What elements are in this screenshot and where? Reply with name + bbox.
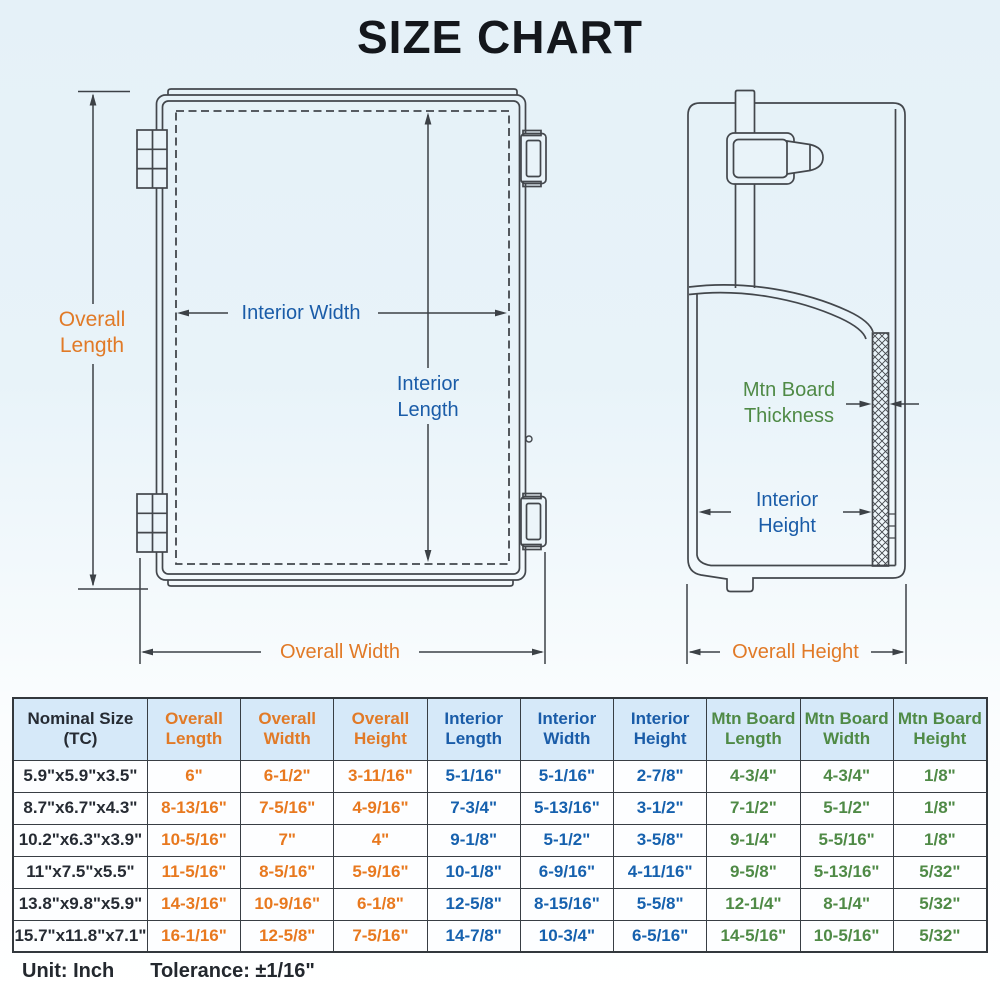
overall-width-label: Overall Width [262,640,418,664]
enclosure-inner-wall [163,101,520,574]
table-cell: 8-1/4" [800,888,893,920]
door-edge-bar-fill [736,97,755,288]
table-header-nominal-size: Nominal Size (TC) [13,698,147,760]
overall-height-label: Overall Height [718,640,873,664]
table-cell: 5-13/16" [520,792,613,824]
table-cell: 8-13/16" [147,792,240,824]
door-edge-bar-cap [736,91,755,99]
table-cell: 9-1/4" [707,824,800,856]
table-cell: 5-1/16" [427,760,520,792]
table-cell: 4" [334,824,427,856]
table-header-mtn-board-height: Mtn Board Height [893,698,987,760]
interior-length-label: Interior Length [382,371,474,423]
table-cell: 5-1/16" [520,760,613,792]
table-cell: 10-3/4" [520,920,613,952]
size-table-container: Nominal Size (TC) Overall Length Overall… [12,697,988,953]
table-row: 8.7"x6.7"x4.3"8-13/16"7-5/16"4-9/16"7-3/… [13,792,987,824]
size-table-body: 5.9"x5.9"x3.5"6"6-1/2"3-11/16"5-1/16"5-1… [13,760,987,952]
interior-length-dimension [425,113,432,563]
table-row: 11"x7.5"x5.5"11-5/16"8-5/16"5-9/16"10-1/… [13,856,987,888]
screw-detail [526,436,532,442]
table-cell: 5-5/16" [800,824,893,856]
table-cell: 14-7/8" [427,920,520,952]
table-cell: 5-5/8" [614,888,707,920]
table-cell: 10-5/16" [800,920,893,952]
table-header-mtn-board-length: Mtn Board Length [707,698,800,760]
table-cell: 1/8" [893,760,987,792]
latch-clamp-side [727,133,823,184]
table-cell: 4-9/16" [334,792,427,824]
table-cell: 10-1/8" [427,856,520,888]
size-table: Nominal Size (TC) Overall Length Overall… [12,697,988,953]
table-cell: 1/8" [893,824,987,856]
tolerance-note: Tolerance: ±1/16" [150,960,315,983]
table-cell: 15.7"x11.8"x7.1" [13,920,147,952]
interior-height-label: Interior Height [733,487,841,539]
table-cell: 3-1/2" [614,792,707,824]
enclosure-lid-top-edge [168,89,517,95]
table-cell: 5/32" [893,856,987,888]
table-cell: 14-3/16" [147,888,240,920]
table-row: 5.9"x5.9"x3.5"6"6-1/2"3-11/16"5-1/16"5-1… [13,760,987,792]
hinge-top [137,130,167,188]
size-table-header: Nominal Size (TC) Overall Length Overall… [13,698,987,760]
table-row: 15.7"x11.8"x7.1"16-1/16"12-5/8"7-5/16"14… [13,920,987,952]
side-inner-bottom [697,546,896,566]
table-cell: 12-5/8" [241,920,334,952]
standoff-steps [889,514,896,538]
latch-bottom [521,494,546,550]
front-view-drawing [137,89,546,586]
table-cell: 6-5/16" [614,920,707,952]
table-cell: 6" [147,760,240,792]
table-cell: 3-11/16" [334,760,427,792]
table-row: 13.8"x9.8"x5.9"14-3/16"10-9/16"6-1/8"12-… [13,888,987,920]
table-header-interior-height: Interior Height [614,698,707,760]
table-cell: 5-1/2" [520,824,613,856]
interior-width-label: Interior Width [225,301,377,325]
table-header-row: Nominal Size (TC) Overall Length Overall… [13,698,987,760]
table-row: 10.2"x6.3"x3.9"10-5/16"7"4"9-1/8"5-1/2"3… [13,824,987,856]
table-cell: 1/8" [893,792,987,824]
table-cell: 9-1/8" [427,824,520,856]
table-cell: 5-9/16" [334,856,427,888]
table-cell: 7-3/4" [427,792,520,824]
enclosure-outer-body [157,95,526,580]
table-cell: 4-11/16" [614,856,707,888]
table-header-overall-height: Overall Height [334,698,427,760]
table-cell: 7" [241,824,334,856]
table-cell: 7-5/16" [334,920,427,952]
table-cell: 10-9/16" [241,888,334,920]
table-cell: 5.9"x5.9"x3.5" [13,760,147,792]
table-cell: 4-3/4" [707,760,800,792]
table-cell: 11"x7.5"x5.5" [13,856,147,888]
table-cell: 5-1/2" [800,792,893,824]
hinge-bottom [137,494,167,552]
table-cell: 7-1/2" [707,792,800,824]
table-cell: 6-1/2" [241,760,334,792]
table-cell: 16-1/16" [147,920,240,952]
table-cell: 10.2"x6.3"x3.9" [13,824,147,856]
lid-seam-curve-lower [689,293,866,339]
table-cell: 10-5/16" [147,824,240,856]
table-cell: 12-5/8" [427,888,520,920]
mounting-board-hatch [873,333,889,566]
table-cell: 13.8"x9.8"x5.9" [13,888,147,920]
unit-note: Unit: Inch [22,960,114,983]
table-header-interior-width: Interior Width [520,698,613,760]
table-cell: 8-5/16" [241,856,334,888]
enclosure-bottom-lip [168,580,513,586]
table-cell: 5/32" [893,920,987,952]
table-cell: 2-7/8" [614,760,707,792]
table-cell: 7-5/16" [241,792,334,824]
table-cell: 12-1/4" [707,888,800,920]
mtn-board-thickness-label: Mtn Board Thickness [726,377,852,429]
table-cell: 5/32" [893,888,987,920]
table-cell: 6-1/8" [334,888,427,920]
table-header-mtn-board-width: Mtn Board Width [800,698,893,760]
table-header-overall-width: Overall Width [241,698,334,760]
interior-dashed-outline [176,111,509,564]
table-header-interior-length: Interior Length [427,698,520,760]
table-cell: 4-3/4" [800,760,893,792]
table-cell: 14-5/16" [707,920,800,952]
table-cell: 3-5/8" [614,824,707,856]
table-cell: 6-9/16" [520,856,613,888]
latch-top [521,131,546,187]
table-cell: 11-5/16" [147,856,240,888]
table-header-overall-length: Overall Length [147,698,240,760]
table-cell: 5-13/16" [800,856,893,888]
footer-notes: Unit: Inch Tolerance: ±1/16" [22,960,315,983]
table-cell: 8-15/16" [520,888,613,920]
overall-length-label: Overall Length [42,307,142,359]
table-cell: 9-5/8" [707,856,800,888]
table-cell: 8.7"x6.7"x4.3" [13,792,147,824]
